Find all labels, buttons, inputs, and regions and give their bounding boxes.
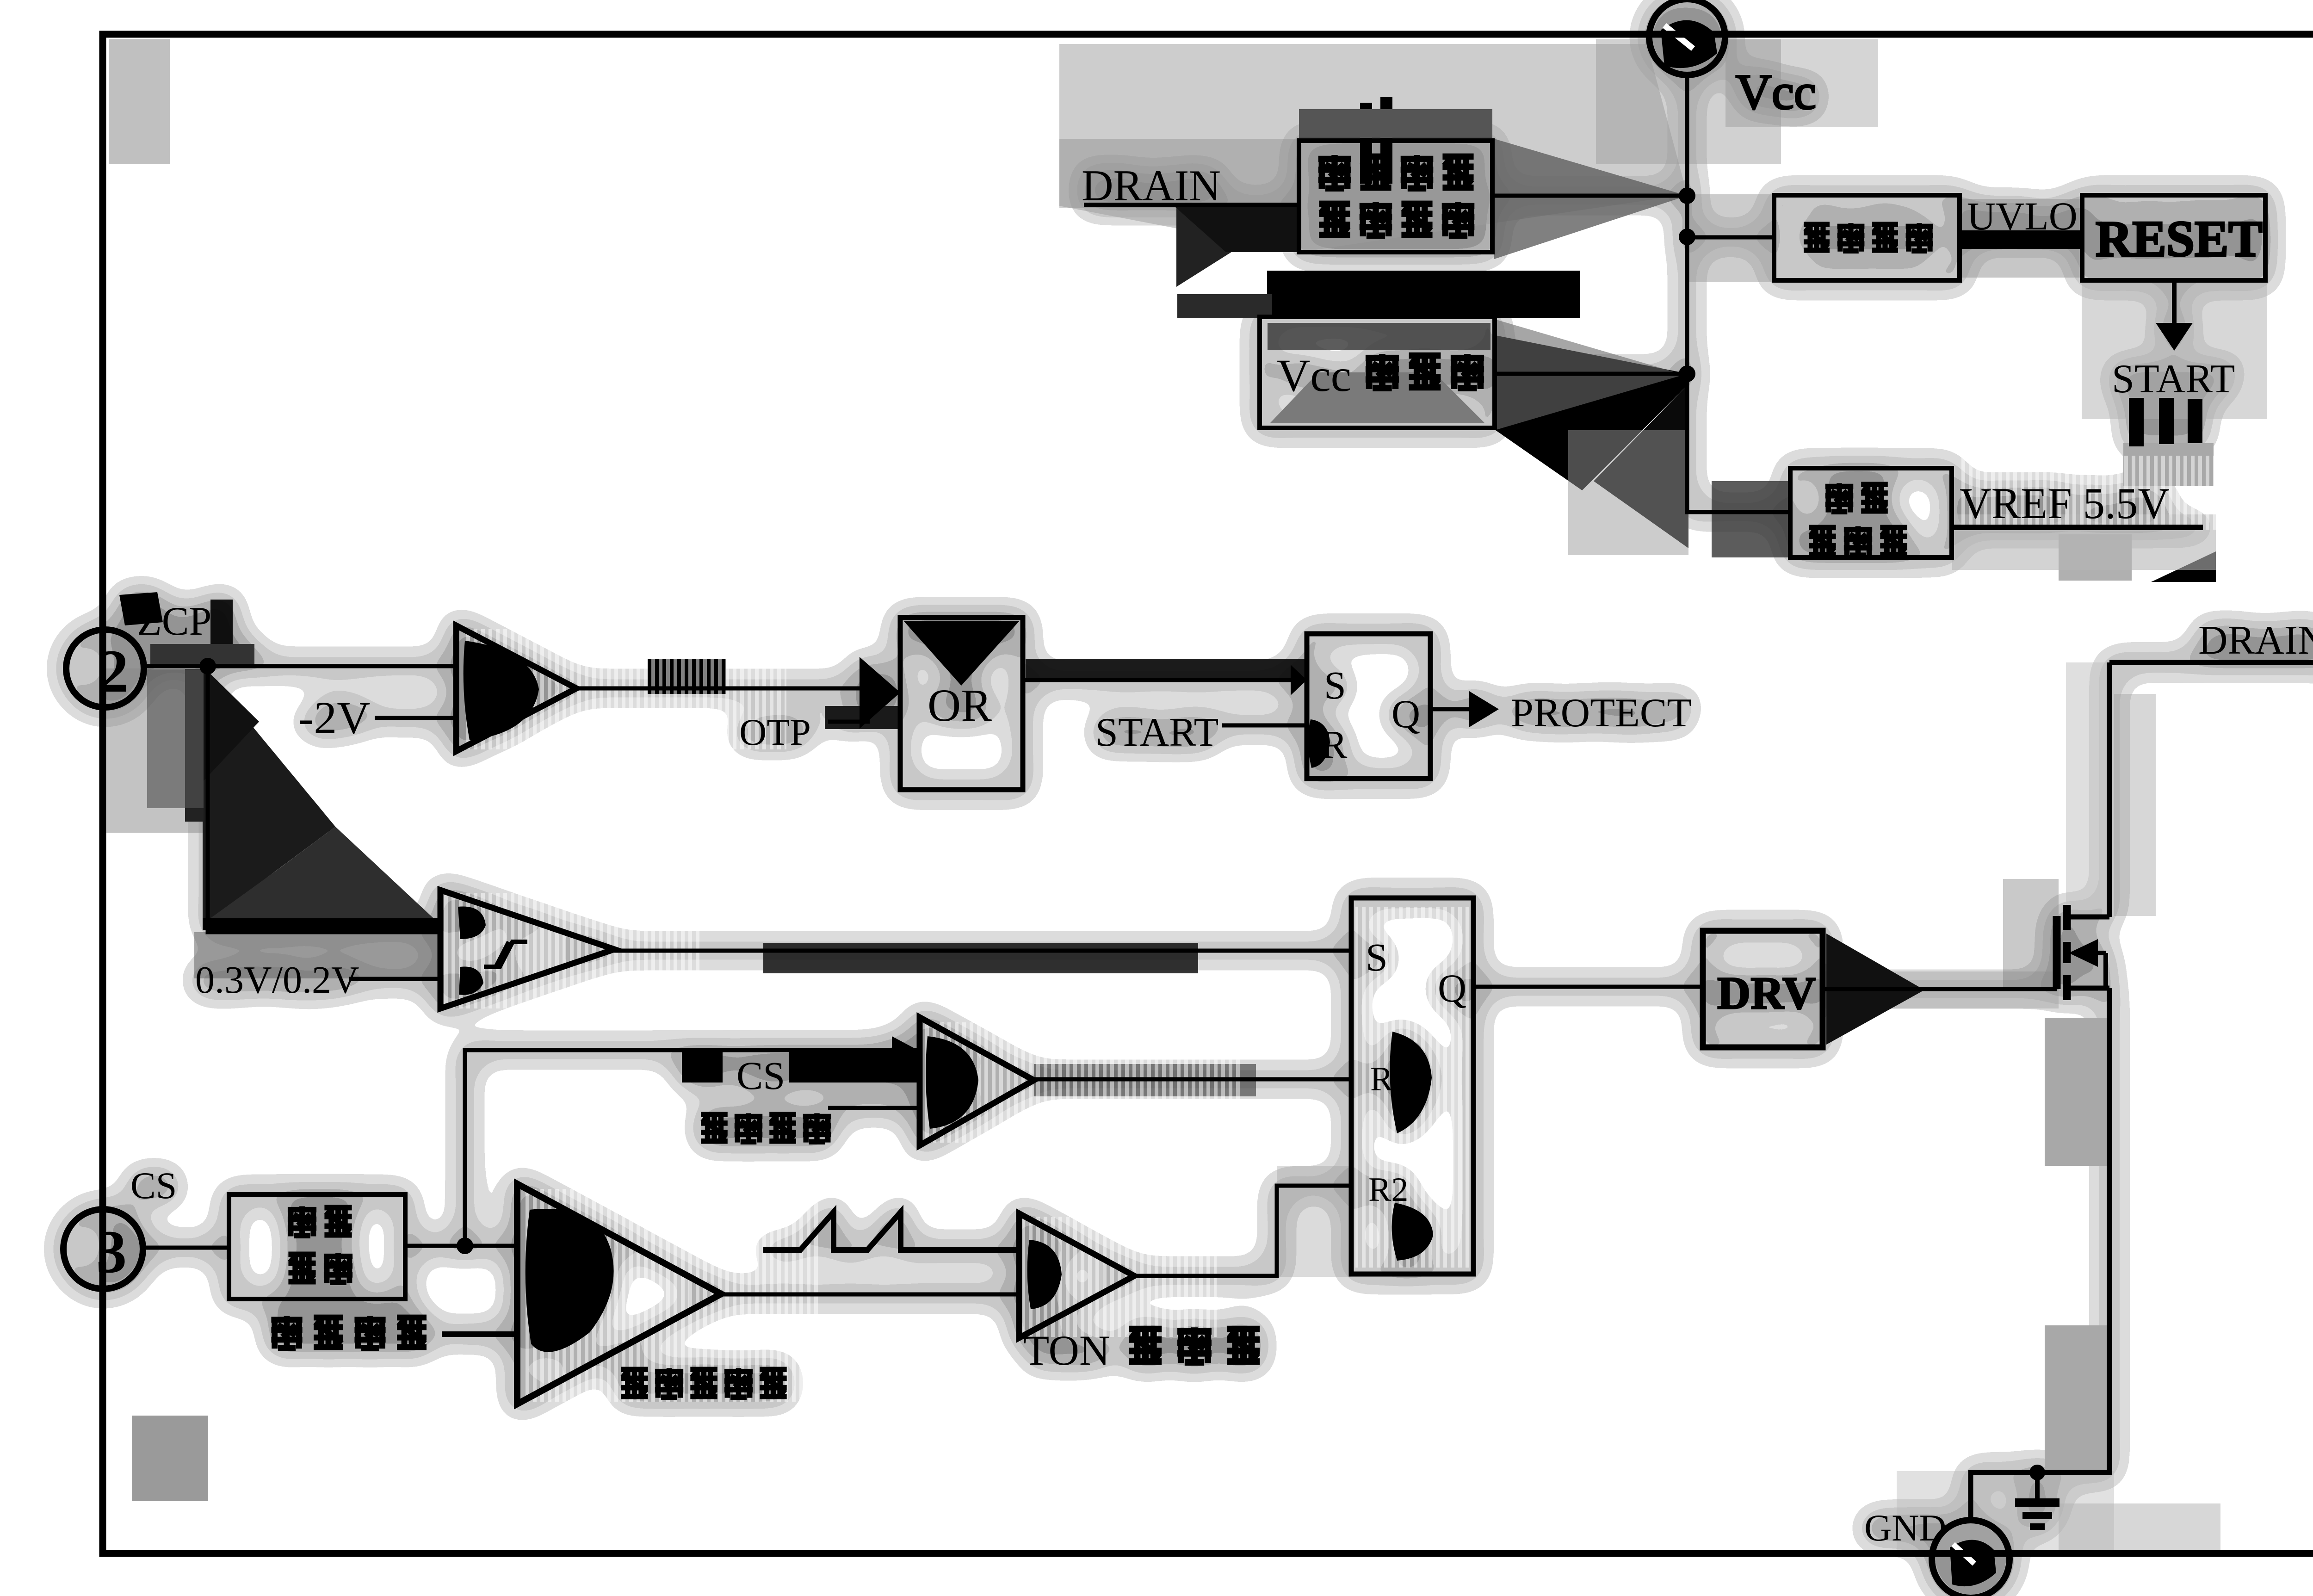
svg-text:OTP: OTP	[739, 711, 811, 753]
svg-text:DRV: DRV	[1717, 967, 1816, 1019]
svg-text:UVLO: UVLO	[1967, 194, 2078, 238]
svg-text:PROTECT: PROTECT	[1511, 691, 1692, 736]
svg-text:START: START	[1095, 710, 1218, 755]
svg-text:R2: R2	[1368, 1171, 1408, 1209]
svg-text:START: START	[2112, 357, 2235, 402]
svg-text:Q: Q	[1392, 692, 1420, 736]
svg-text:S: S	[1324, 663, 1346, 707]
svg-text:DRAIN: DRAIN	[2198, 618, 2313, 663]
svg-text:TON: TON	[1023, 1327, 1110, 1374]
svg-text:CS: CS	[130, 1164, 177, 1206]
svg-text:S: S	[1366, 935, 1388, 979]
svg-text:VREF 5.5V: VREF 5.5V	[1960, 479, 2170, 528]
svg-text:R: R	[1321, 722, 1348, 767]
svg-text:RESET: RESET	[2096, 210, 2263, 267]
svg-text:0.3V/0.2V: 0.3V/0.2V	[195, 959, 359, 1002]
svg-text:Vcc: Vcc	[1736, 65, 1816, 120]
svg-text:CS: CS	[736, 1053, 785, 1098]
svg-text:Q: Q	[1438, 966, 1466, 1010]
svg-text:-2V: -2V	[298, 692, 371, 743]
svg-text:OR: OR	[928, 680, 992, 731]
svg-text:Vcc: Vcc	[1277, 350, 1351, 401]
